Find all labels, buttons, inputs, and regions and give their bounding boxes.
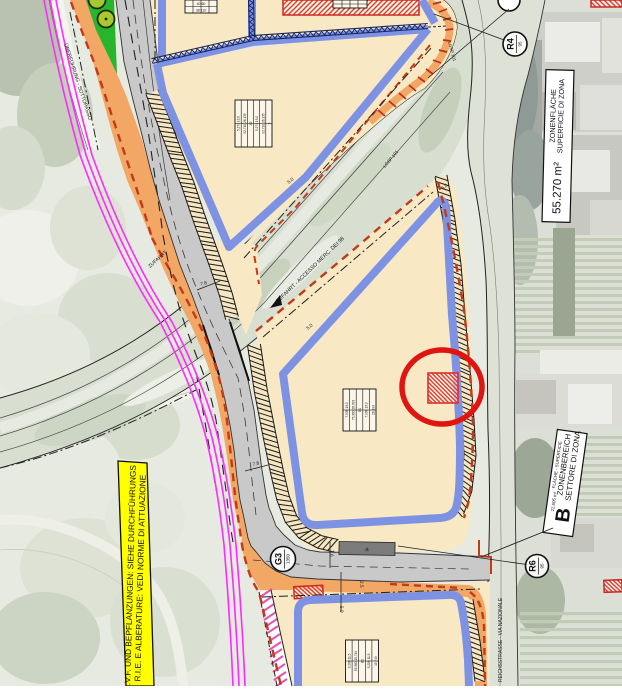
svg-text:R6: R6: [528, 560, 538, 572]
svg-text:R4: R4: [506, 38, 516, 50]
svg-text:95: 95: [540, 563, 545, 569]
svg-text:7.938 13.0: 7.938 13.0: [365, 402, 369, 417]
svg-text:G3: G3: [274, 553, 284, 565]
svg-text:38 110: 38 110: [196, 9, 206, 13]
svg-text:3.208 11.5: 3.208 11.5: [367, 653, 371, 668]
svg-text:1350: 1350: [286, 553, 291, 564]
svg-text:55.270 m²: 55.270 m²: [551, 162, 564, 214]
svg-text:3.208 11.5: 3.208 11.5: [347, 653, 351, 668]
svg-text:15.749: 15.749: [374, 656, 378, 666]
svg-text:95: 95: [518, 41, 523, 47]
svg-text:26.393: 26.393: [371, 405, 375, 415]
svg-text:55.360 15.749: 55.360 15.749: [354, 651, 358, 672]
svg-text:A5: A5: [249, 121, 253, 125]
svg-text:B2: B2: [361, 659, 365, 663]
svg-text:5.271 13.0: 5.271 13.0: [255, 116, 259, 131]
svg-text:92.710 26.135: 92.710 26.135: [261, 113, 265, 134]
svg-text:40 60: 40 60: [197, 2, 206, 6]
svg-text:92.710 26.135: 92.710 26.135: [243, 113, 247, 134]
svg-text:5.271 13.0: 5.271 13.0: [237, 116, 241, 131]
svg-text:75.360 26.393: 75.360 26.393: [352, 400, 356, 421]
svg-text:B1: B1: [358, 408, 362, 412]
svg-text:7.938 13.0: 7.938 13.0: [345, 402, 349, 417]
svg-text:7.6: 7.6: [328, 550, 334, 557]
svg-text:B: B: [552, 506, 576, 523]
svg-text:2.5: 2.5: [358, 581, 364, 588]
svg-text:5: 5: [268, 122, 272, 124]
svg-text:REICHSSTRASSE - VIA NAZIONALE: REICHSSTRASSE - VIA NAZIONALE: [498, 597, 504, 682]
